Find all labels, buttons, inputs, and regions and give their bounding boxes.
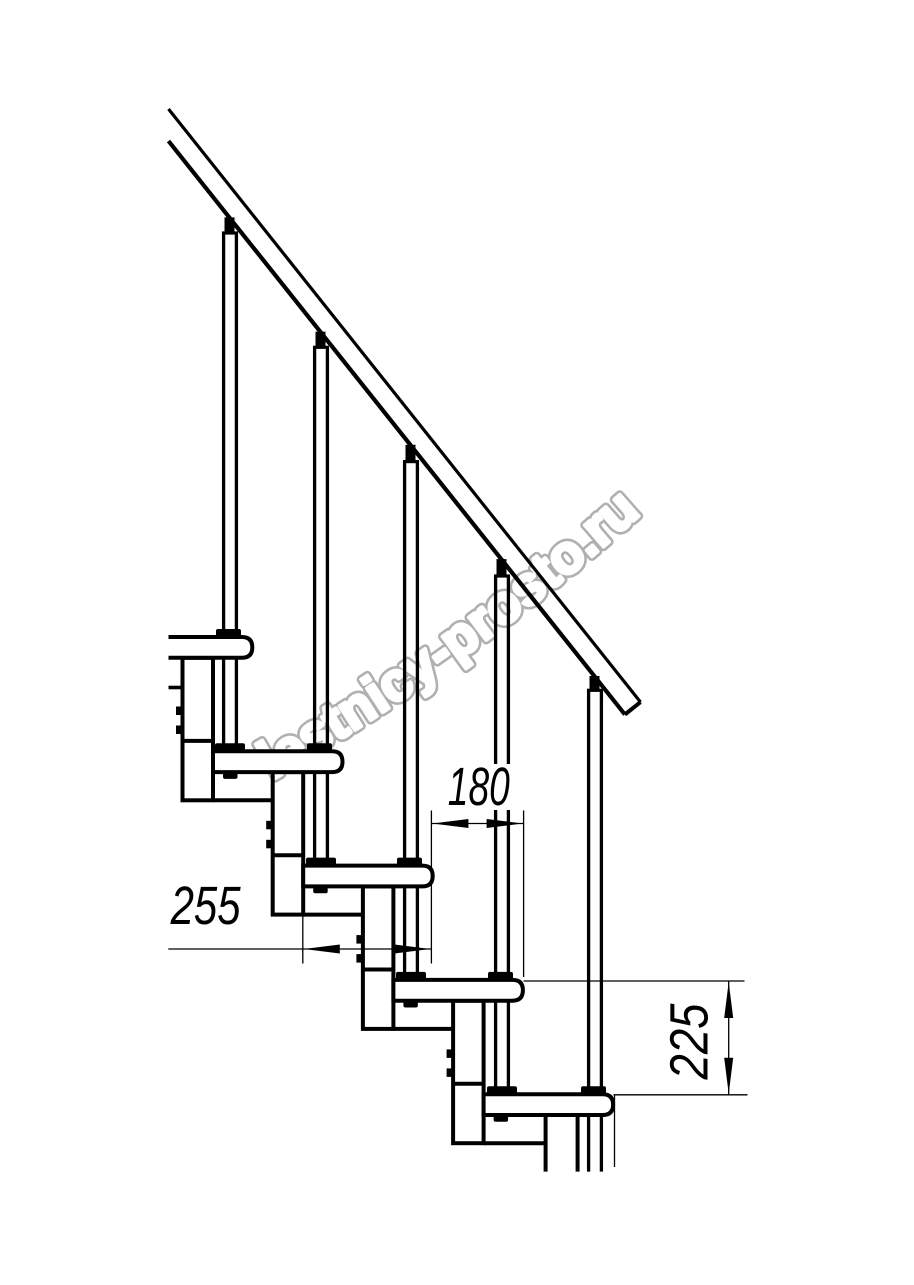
svg-text:255: 255 (170, 876, 242, 936)
svg-text:180: 180 (448, 757, 510, 817)
svg-text:225: 225 (659, 1003, 719, 1081)
